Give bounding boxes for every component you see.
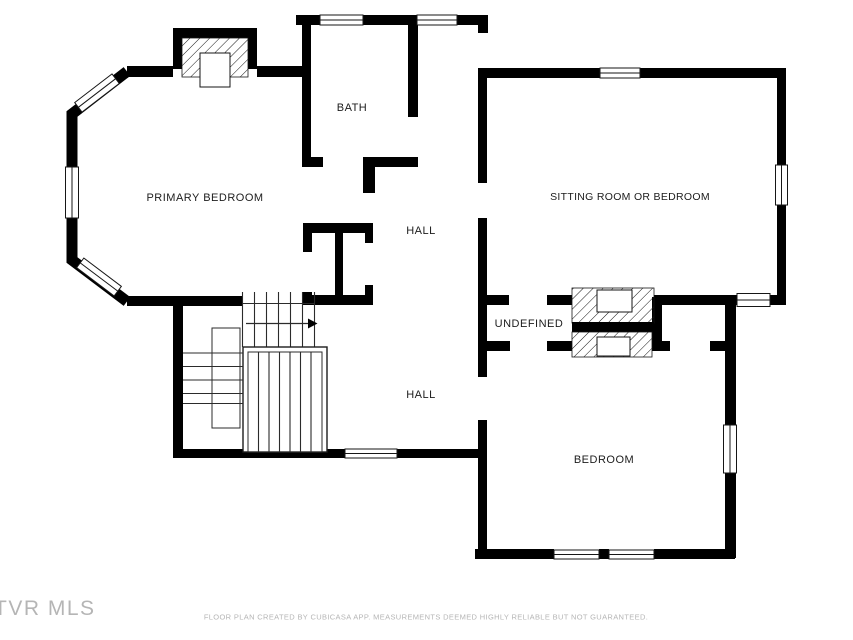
wall-segment	[127, 296, 243, 306]
chimney-primary-bedroom	[173, 28, 257, 87]
wall-segment	[777, 205, 786, 305]
wall-segment	[303, 233, 312, 252]
wall-segment	[654, 549, 735, 559]
firebox	[597, 337, 630, 356]
window	[776, 165, 788, 205]
wall-segment	[296, 15, 320, 25]
window	[345, 449, 397, 458]
window	[724, 425, 737, 473]
wall-segment	[363, 167, 375, 193]
window	[417, 15, 457, 25]
wall-segment	[127, 66, 173, 77]
window	[609, 550, 654, 559]
wall-segment	[173, 306, 183, 449]
firebox	[597, 290, 632, 312]
wall-segment	[654, 295, 737, 305]
wall-segment	[335, 223, 343, 305]
wall-segment	[478, 68, 600, 78]
wall-segment	[302, 25, 311, 167]
wall-segment	[365, 223, 373, 243]
wall-segment	[363, 157, 417, 167]
wall-segment	[777, 78, 786, 165]
windows	[66, 15, 788, 559]
window	[320, 15, 363, 25]
wall-segment	[365, 285, 373, 305]
window	[75, 74, 120, 112]
window	[77, 258, 122, 296]
wall-segment	[547, 295, 572, 305]
wall-segment	[725, 473, 736, 558]
floor-plan: PRIMARY BEDROOM BATH SITTING ROOM OR BED…	[0, 0, 853, 640]
wall-segment	[478, 341, 510, 351]
walls	[127, 15, 786, 559]
wall-segment	[248, 38, 257, 69]
floor-plan-drawing	[0, 0, 853, 640]
wall-segment	[257, 66, 302, 77]
wall-segment	[457, 15, 488, 25]
window	[554, 550, 599, 559]
window	[66, 167, 79, 218]
wall-segment	[478, 420, 487, 558]
wall-segment	[725, 305, 736, 425]
wall-segment	[173, 38, 182, 69]
wall-segment	[475, 549, 554, 559]
wall-segment	[478, 25, 488, 33]
wall-segment	[547, 341, 572, 351]
stairs-direction-arrow-icon	[308, 319, 318, 329]
staircase	[183, 292, 327, 452]
wall-segment	[478, 78, 487, 183]
wall-segment	[408, 25, 418, 117]
wall-segment	[478, 218, 487, 377]
wall-segment	[599, 549, 609, 559]
window	[737, 294, 770, 307]
wall-segment	[662, 341, 670, 351]
window	[600, 68, 640, 78]
wall-segment	[770, 295, 786, 305]
wall-segment	[572, 322, 654, 332]
wall-segment	[302, 157, 323, 167]
firebox	[200, 53, 230, 87]
wall-segment	[487, 295, 509, 305]
wall-segment	[173, 28, 257, 38]
wall-segment	[397, 449, 478, 458]
wall-segment	[640, 68, 786, 78]
wall-segment	[363, 15, 417, 25]
fireplace-double-sided	[572, 288, 654, 357]
